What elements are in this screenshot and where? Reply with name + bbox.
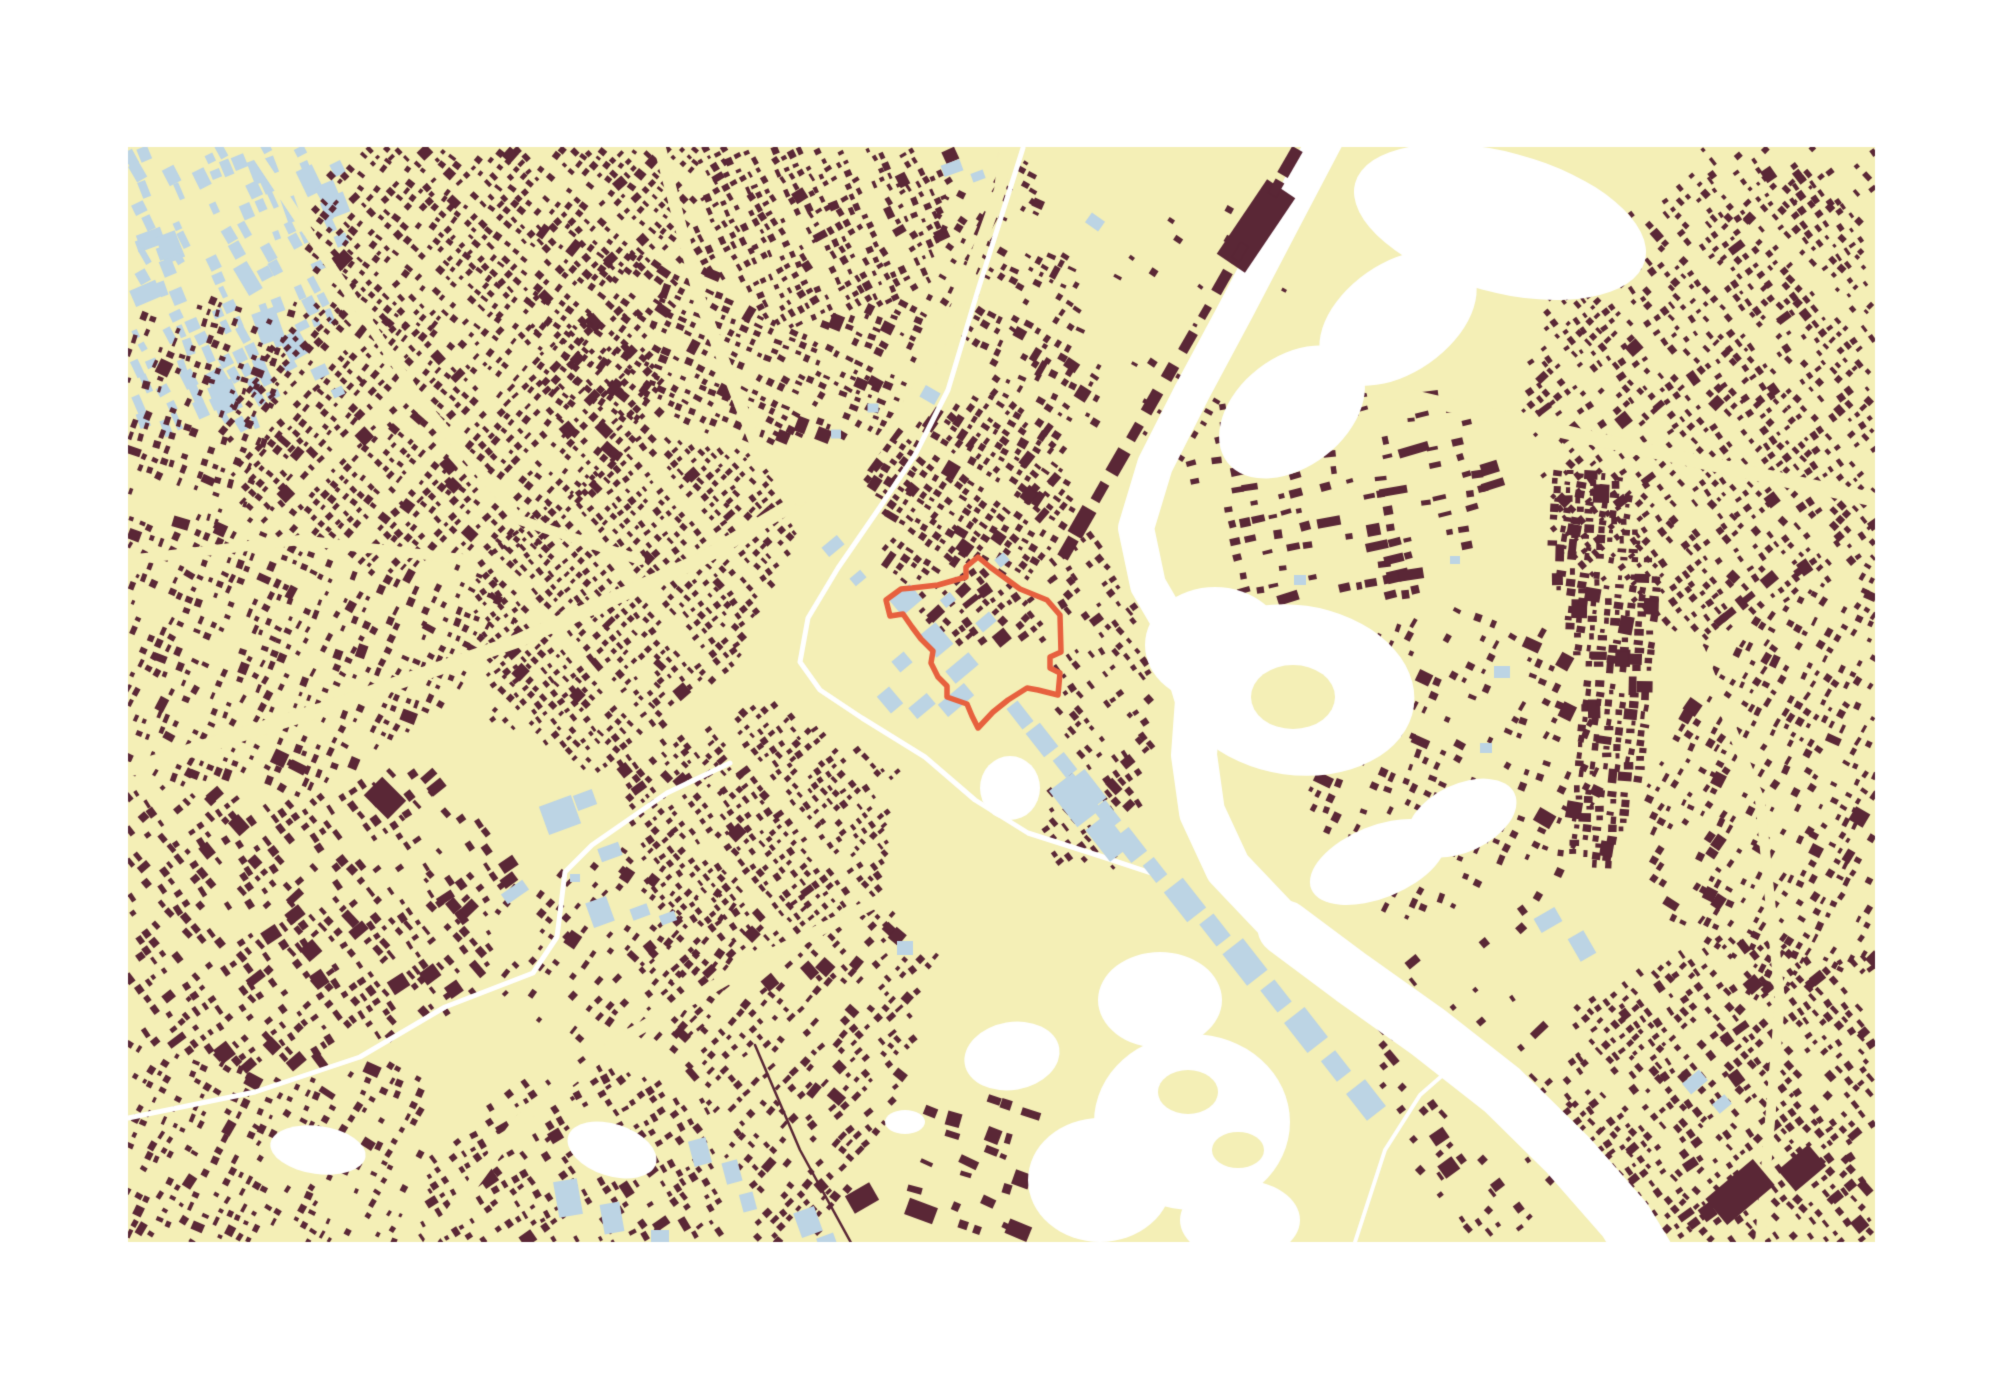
- map-page: [0, 0, 2000, 1400]
- figure-ground-map: [0, 0, 2000, 1400]
- city-map-image: [0, 0, 2000, 1400]
